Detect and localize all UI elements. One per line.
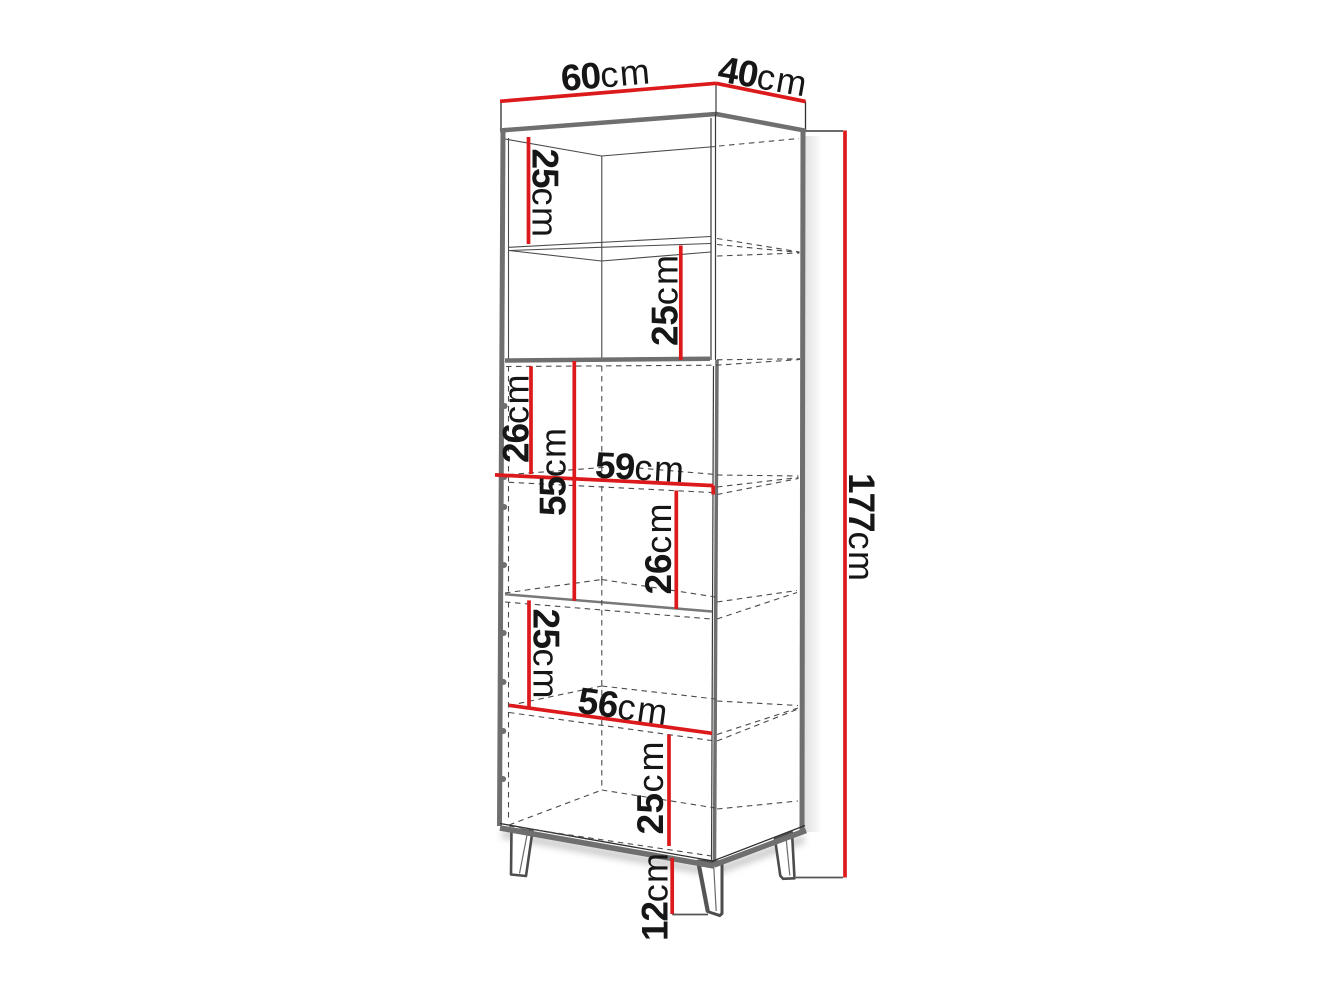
svg-text:12cm: 12cm xyxy=(635,853,676,941)
svg-text:177cm: 177cm xyxy=(841,473,882,581)
svg-text:26cm: 26cm xyxy=(638,504,679,595)
svg-text:25cm: 25cm xyxy=(645,255,686,346)
svg-text:59cm: 59cm xyxy=(594,445,685,491)
svg-text:55cm: 55cm xyxy=(533,428,574,516)
svg-text:60cm: 60cm xyxy=(559,50,651,99)
svg-text:26cm: 26cm xyxy=(496,375,537,464)
svg-text:25cm: 25cm xyxy=(630,742,671,835)
svg-text:25cm: 25cm xyxy=(524,149,565,238)
svg-text:25cm: 25cm xyxy=(525,609,566,699)
